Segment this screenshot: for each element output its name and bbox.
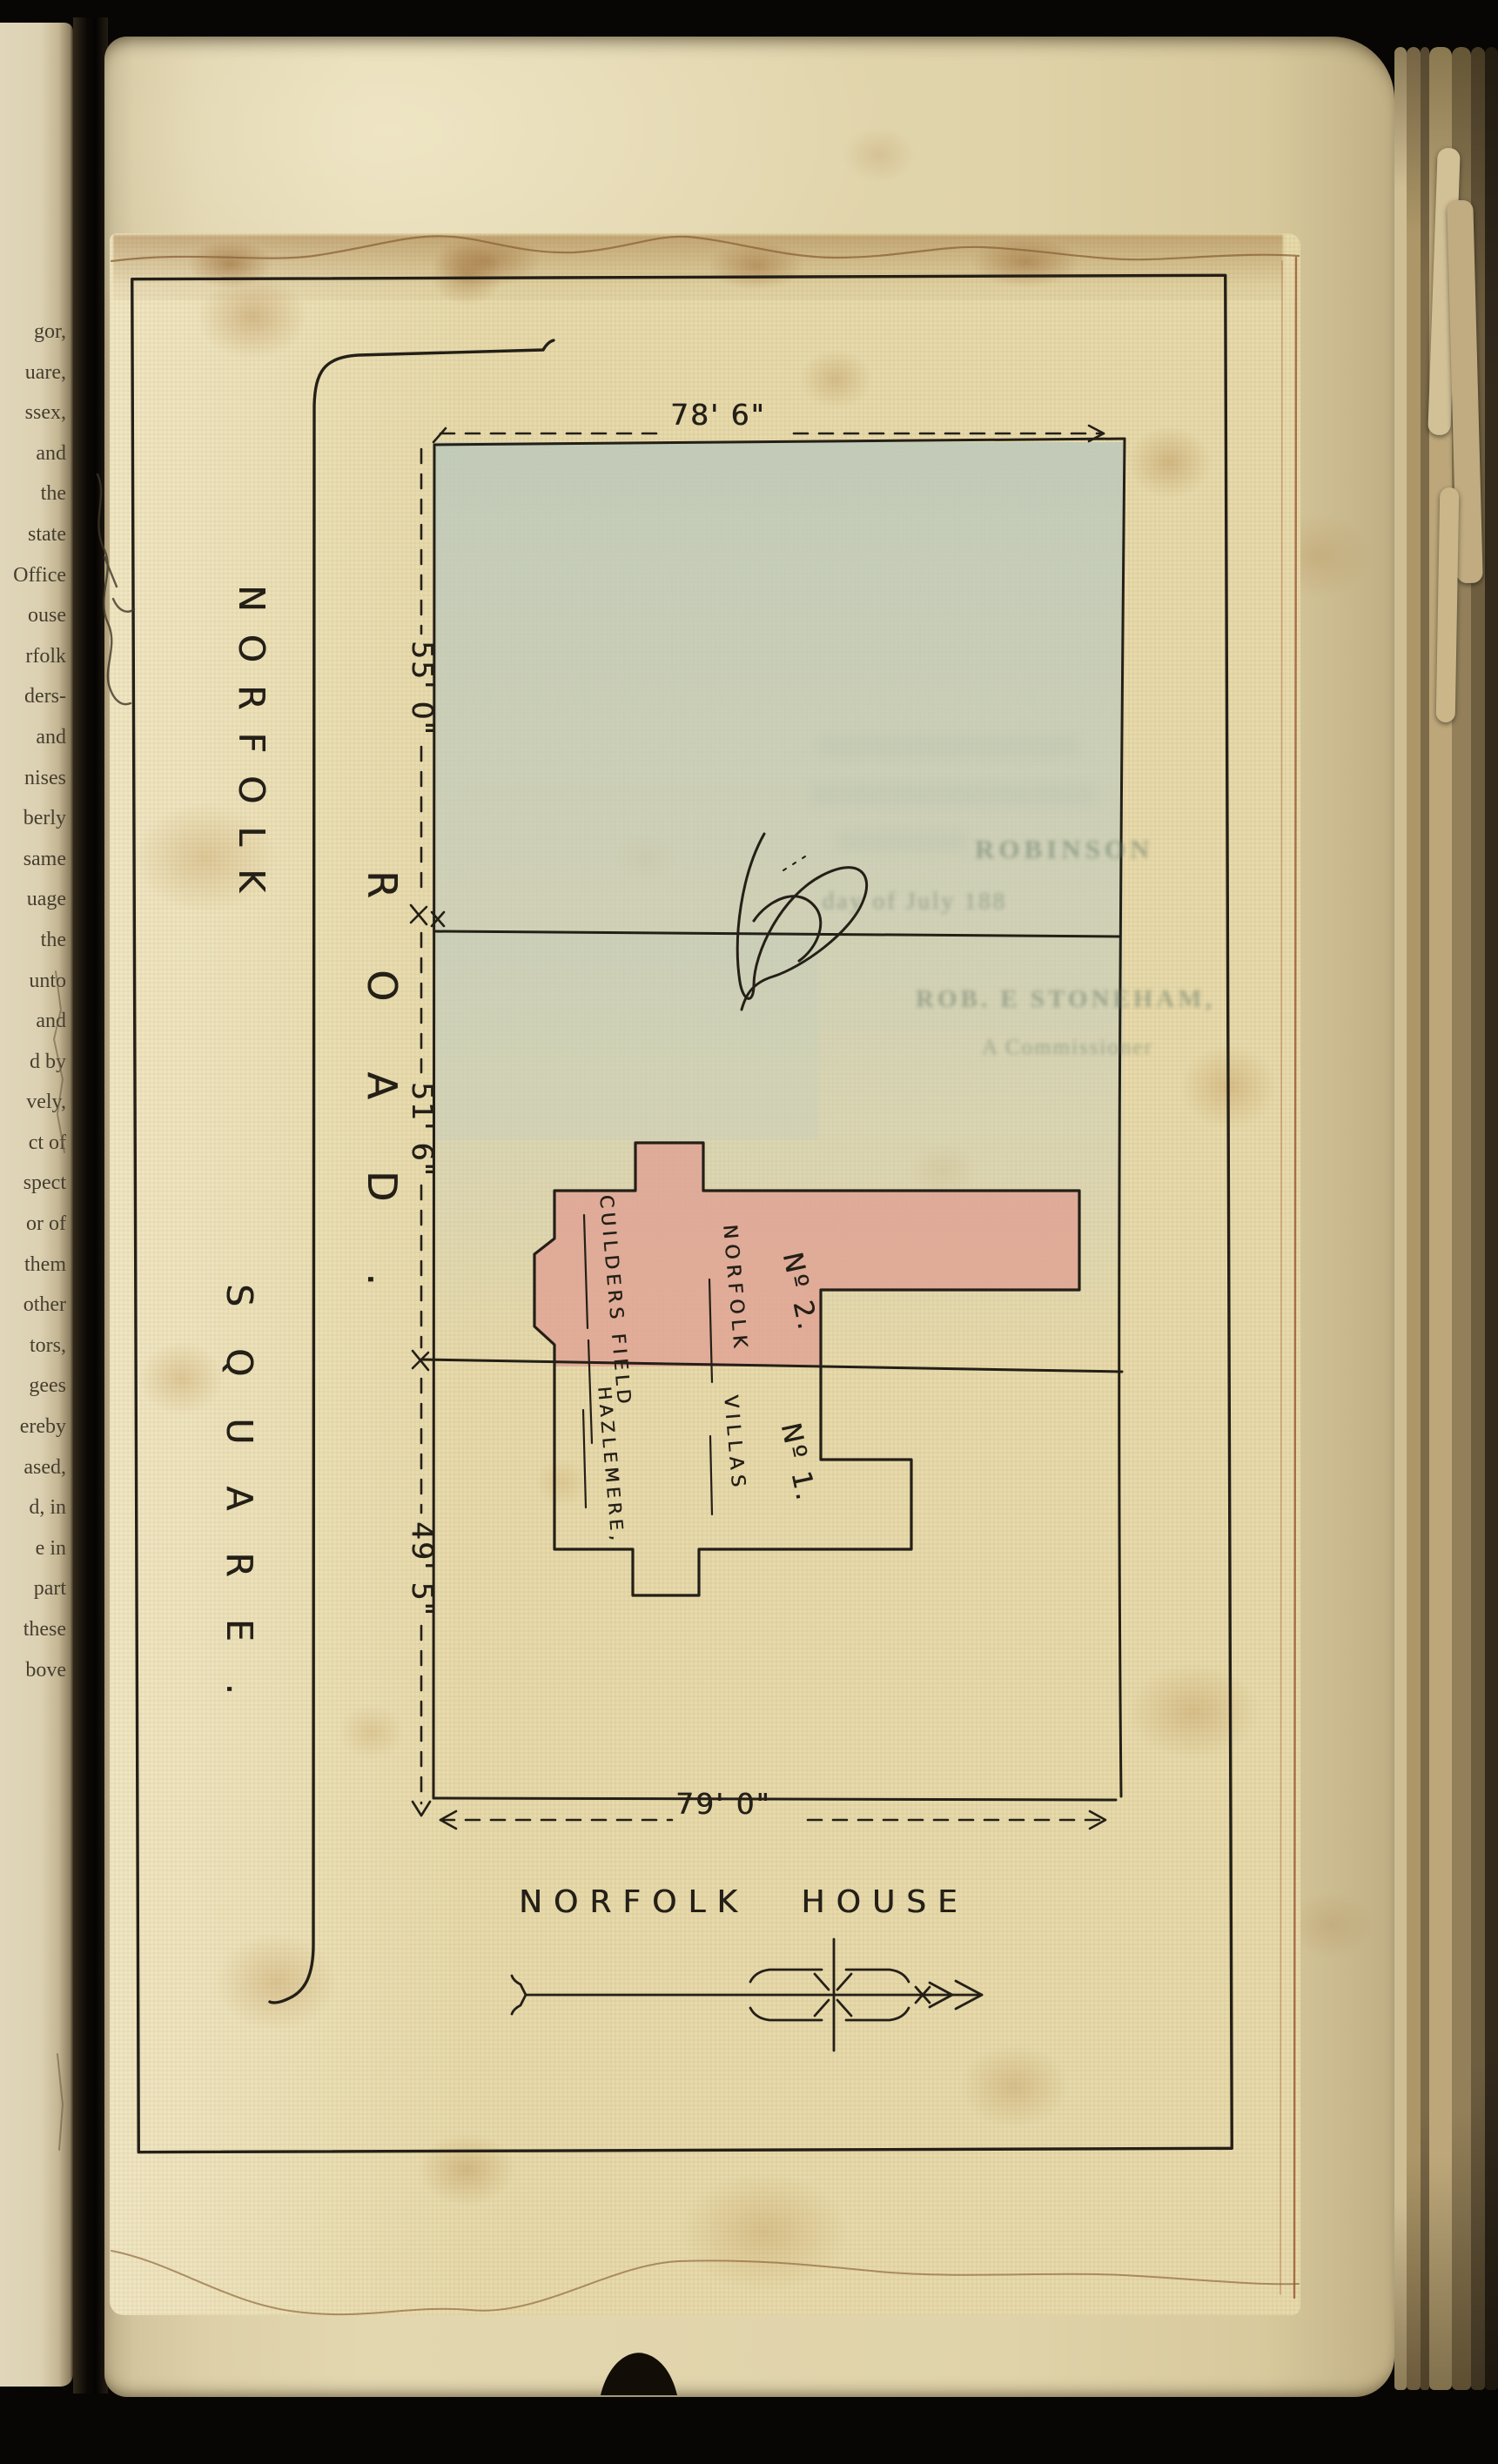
- dimension-side-upper: 55' 0": [408, 641, 437, 736]
- text-fragment: other: [0, 1285, 66, 1326]
- dimension-side-middle: 51' 6": [408, 1082, 437, 1178]
- text-fragment: gees: [0, 1366, 66, 1407]
- glue-stain-band: [113, 235, 1283, 299]
- text-fragment: uage: [0, 879, 66, 920]
- tracing-cloth-sheet: [110, 233, 1300, 2315]
- page-stack-edge: [1407, 47, 1421, 2390]
- street-label-road: ROAD.: [362, 870, 402, 1357]
- ghost-text-blur: [836, 831, 966, 852]
- text-fragment: the: [0, 920, 66, 961]
- adjacent-page-text-column: gor,uare,ssex,andthestateOfficeouserfolk…: [0, 312, 66, 1690]
- text-fragment: d by: [0, 1042, 66, 1083]
- ghost-text-line: ROB. E STONEHAM,: [916, 985, 1215, 1014]
- text-fragment: and: [0, 1001, 66, 1042]
- text-fragment: ders-: [0, 676, 66, 717]
- ghost-text-line: A Commissioner: [982, 1036, 1153, 1060]
- page-stack-edge: [1394, 47, 1407, 2390]
- text-fragment: e in: [0, 1528, 66, 1569]
- text-fragment: bove: [0, 1650, 66, 1691]
- text-fragment: nises: [0, 758, 66, 799]
- text-fragment: same: [0, 839, 66, 880]
- text-fragment: and: [0, 717, 66, 758]
- dimension-side-lower: 49' 5": [408, 1521, 437, 1617]
- text-fragment: gor,: [0, 312, 66, 352]
- text-fragment: ouse: [0, 595, 66, 636]
- text-fragment: ereby: [0, 1407, 66, 1447]
- text-fragment: spect: [0, 1163, 66, 1204]
- text-fragment: or of: [0, 1204, 66, 1245]
- page-stack-edge: [1485, 47, 1498, 2390]
- text-fragment: tors,: [0, 1326, 66, 1366]
- plan-title: NORFOLK HOUSE: [519, 1887, 969, 1918]
- text-fragment: the: [0, 473, 66, 514]
- text-fragment: ct of: [0, 1123, 66, 1164]
- text-fragment: vely,: [0, 1082, 66, 1123]
- text-fragment: them: [0, 1245, 66, 1286]
- street-label-norfolk: NORFOLK: [233, 585, 269, 915]
- ghost-text-blur: [809, 783, 1097, 806]
- text-fragment: these: [0, 1609, 66, 1650]
- ghost-text-blur: [818, 735, 1079, 758]
- text-fragment: state: [0, 514, 66, 555]
- text-fragment: unto: [0, 961, 66, 1002]
- text-fragment: berly: [0, 798, 66, 839]
- text-fragment: ased,: [0, 1447, 66, 1488]
- text-fragment: Office: [0, 555, 66, 596]
- page-stack-edge: [1421, 47, 1429, 2390]
- ghost-text-line: ROBINSON: [975, 834, 1153, 865]
- ghost-text-line: day of July 188: [823, 888, 1007, 915]
- text-fragment: and: [0, 433, 66, 474]
- scanned-book-page: gor,uare,ssex,andthestateOfficeouserfolk…: [0, 0, 1498, 2464]
- text-fragment: d, in: [0, 1487, 66, 1528]
- adjacent-page-edge: gor,uare,ssex,andthestateOfficeouserfolk…: [0, 23, 73, 2387]
- text-fragment: ssex,: [0, 393, 66, 433]
- dimension-top: 78' 6": [670, 400, 766, 429]
- torn-tissue-strip: [1436, 487, 1460, 722]
- street-label-square: SQUARE.: [221, 1284, 257, 1736]
- text-fragment: part: [0, 1568, 66, 1609]
- text-fragment: uare,: [0, 352, 66, 393]
- text-fragment: rfolk: [0, 636, 66, 677]
- book-gutter-shadow: [73, 17, 108, 2394]
- dimension-bottom: 79' 0": [675, 1789, 771, 1818]
